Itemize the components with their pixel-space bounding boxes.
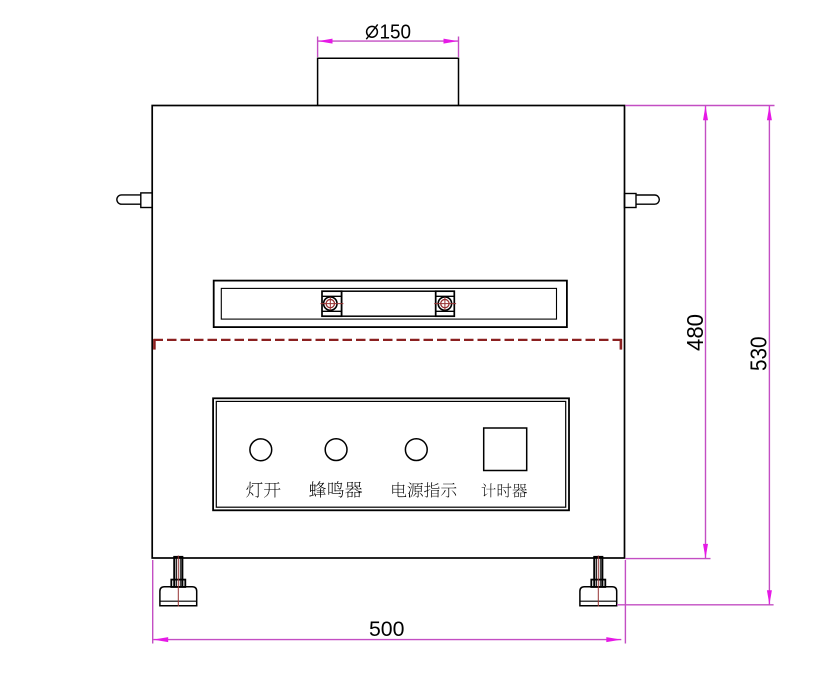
svg-text:530: 530 [745,337,771,372]
svg-text:500: 500 [369,617,405,641]
svg-text:480: 480 [682,314,708,351]
svg-text:150: 150 [380,21,412,44]
